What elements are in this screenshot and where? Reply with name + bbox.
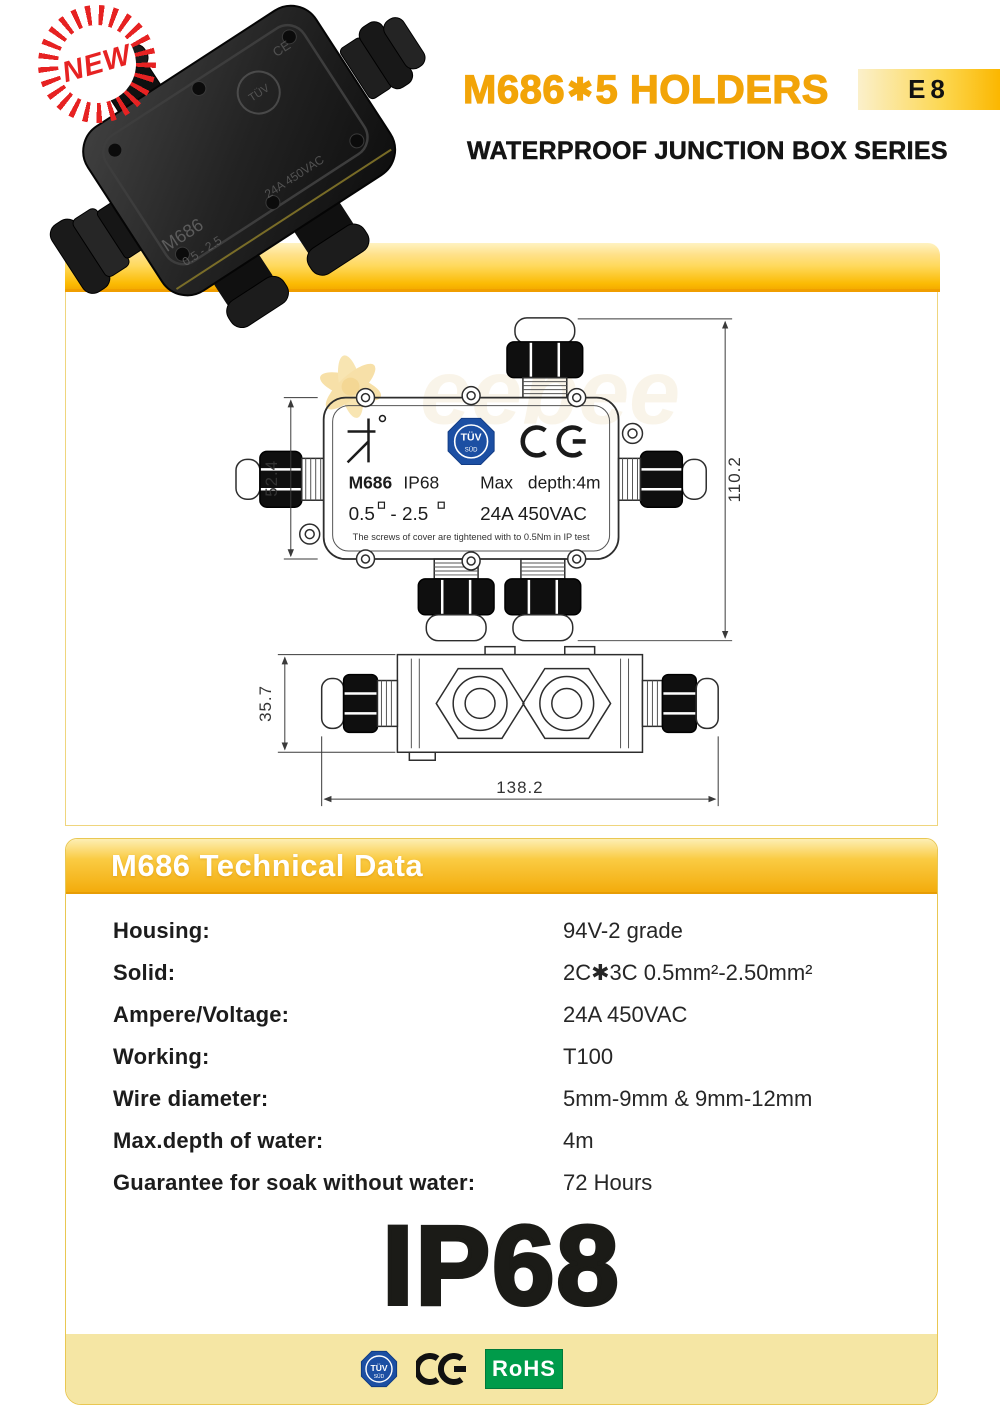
dim-box-height: 52.4	[262, 460, 281, 497]
spec-label: Solid:	[113, 960, 563, 986]
spec-value: 72 Hours	[563, 1170, 652, 1196]
spec-label: Wire diameter:	[113, 1086, 563, 1112]
dim-overall-height: 110.2	[725, 456, 744, 502]
spec-table: Housing: 94V-2 grade Solid: 2C✱3C 0.5mm²…	[66, 910, 937, 1204]
spec-label: Max.depth of water:	[113, 1128, 563, 1154]
brand-logo-icon	[348, 416, 386, 463]
spec-value: T100	[563, 1044, 613, 1070]
svg-text:TÜV: TÜV	[371, 1363, 388, 1373]
certification-band: TÜV SÜD RoHS	[66, 1334, 937, 1404]
svg-text:SÜD: SÜD	[465, 446, 478, 453]
spec-label: Working:	[113, 1044, 563, 1070]
ce-mark-icon	[416, 1349, 468, 1389]
spec-label: Housing:	[113, 918, 563, 944]
side-view	[322, 647, 719, 761]
gland-bottom-1	[418, 559, 494, 641]
table-row: Ampere/Voltage: 24A 450VAC	[66, 994, 937, 1036]
starburst-icon: NEW	[38, 5, 156, 123]
svg-text:SÜD: SÜD	[374, 1373, 385, 1380]
spec-value: 2C✱3C 0.5mm²-2.50mm²	[563, 960, 812, 986]
dim-side-height: 35.7	[256, 685, 275, 722]
technical-data-panel: M686 Technical Data Housing: 94V-2 grade…	[65, 838, 938, 1405]
rohs-label: RoHS	[492, 1356, 556, 1382]
spec-value: 4m	[563, 1128, 594, 1154]
label-range-a: 0.5	[349, 504, 375, 525]
product-label: TÜV SÜD M686 IP68 Max depth:4m 0.5 - 2.5…	[348, 416, 601, 543]
table-row: Max.depth of water: 4m	[66, 1120, 937, 1162]
spec-value: 5mm-9mm & 9mm-12mm	[563, 1086, 812, 1112]
technical-data-title: M686 Technical Data	[111, 848, 423, 884]
page: TÜV CE M686 0.5 - 2.5 24A 450VAC NEW M68…	[0, 0, 1000, 1413]
dim-overall-width: 138.2	[496, 778, 543, 797]
ip-rating: IP68	[66, 1201, 937, 1331]
rohs-badge: RoHS	[485, 1349, 563, 1389]
table-row: Housing: 94V-2 grade	[66, 910, 937, 952]
table-row: Wire diameter: 5mm-9mm & 9mm-12mm	[66, 1078, 937, 1120]
label-max: Max	[480, 472, 513, 492]
table-row: Guarantee for soak without water: 72 Hou…	[66, 1162, 937, 1204]
page-code: E8	[908, 74, 950, 105]
page-subtitle: WATERPROOF JUNCTION BOX SERIES	[467, 137, 948, 166]
gland-right	[619, 451, 707, 507]
label-rating: 24A 450VAC	[480, 504, 587, 525]
asterisk-icon: ✱	[565, 72, 595, 107]
new-badge-label: NEW	[58, 38, 135, 89]
svg-text:TÜV: TÜV	[461, 430, 482, 443]
technical-drawing-panel: eebee	[65, 292, 938, 826]
technical-drawing: eebee	[66, 292, 937, 824]
label-model: M686	[349, 472, 393, 492]
page-title: M686✱5 HOLDERS	[463, 68, 829, 113]
label-range-b: - 2.5	[390, 504, 428, 525]
mm2-square	[438, 502, 444, 508]
spec-label: Ampere/Voltage:	[113, 1002, 563, 1028]
gland-bottom-2	[505, 559, 581, 641]
page-code-badge: E8	[858, 69, 1000, 110]
tuv-logo: TÜV SÜD	[448, 418, 494, 464]
side-gland-right	[642, 675, 718, 733]
tuv-logo: TÜV SÜD	[359, 1349, 399, 1389]
side-gland-left	[322, 675, 398, 733]
new-badge: NEW	[38, 5, 156, 123]
spec-label: Guarantee for soak without water:	[113, 1170, 563, 1196]
label-depth: depth:4m	[528, 472, 601, 492]
mm2-square	[378, 502, 384, 508]
label-ip: IP68	[403, 472, 439, 492]
spec-value: 24A 450VAC	[563, 1002, 687, 1028]
spec-value: 94V-2 grade	[563, 918, 683, 944]
table-row: Solid: 2C✱3C 0.5mm²-2.50mm²	[66, 952, 937, 994]
table-row: Working: T100	[66, 1036, 937, 1078]
label-note: The screws of cover are tightened with t…	[353, 532, 590, 542]
technical-data-header: M686 Technical Data	[66, 839, 937, 894]
